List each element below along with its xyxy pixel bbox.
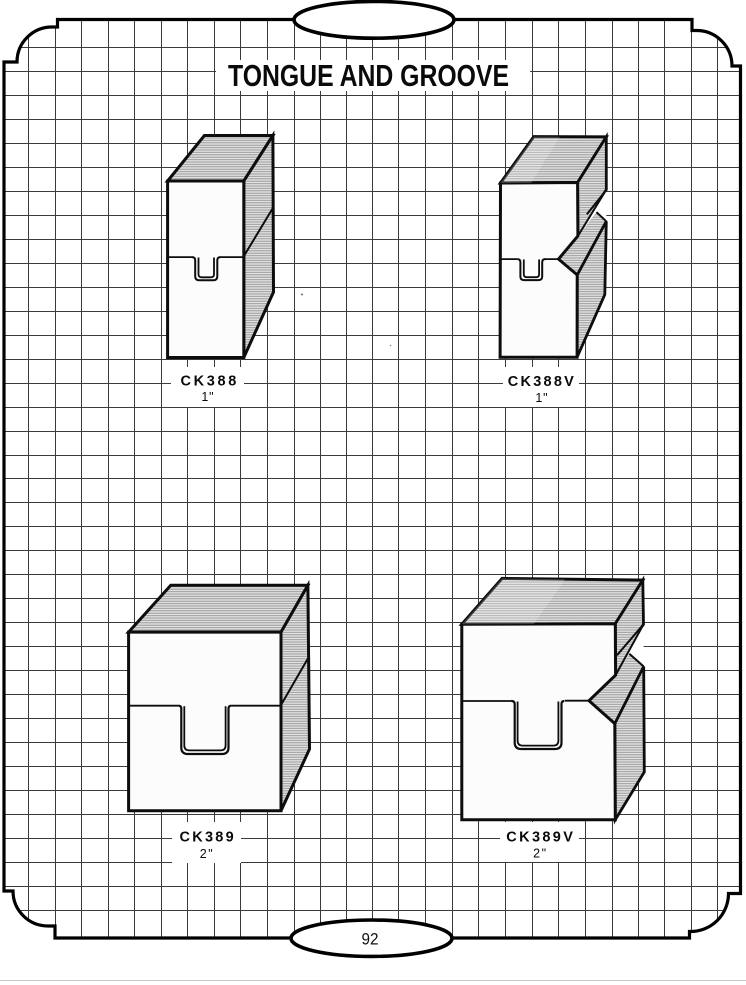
svg-text:2": 2" bbox=[533, 847, 546, 861]
svg-text:CK388: CK388 bbox=[181, 374, 237, 390]
svg-text:2": 2" bbox=[200, 847, 213, 861]
svg-text:CK389: CK389 bbox=[180, 829, 234, 845]
svg-text:CK388V: CK388V bbox=[508, 374, 574, 390]
svg-text:1": 1" bbox=[535, 391, 547, 405]
svg-text:CK389V: CK389V bbox=[506, 830, 573, 846]
svg-text:92: 92 bbox=[362, 930, 379, 948]
svg-text:TONGUE AND GROOVE: TONGUE AND GROOVE bbox=[228, 59, 509, 93]
svg-text:1": 1" bbox=[201, 390, 213, 404]
